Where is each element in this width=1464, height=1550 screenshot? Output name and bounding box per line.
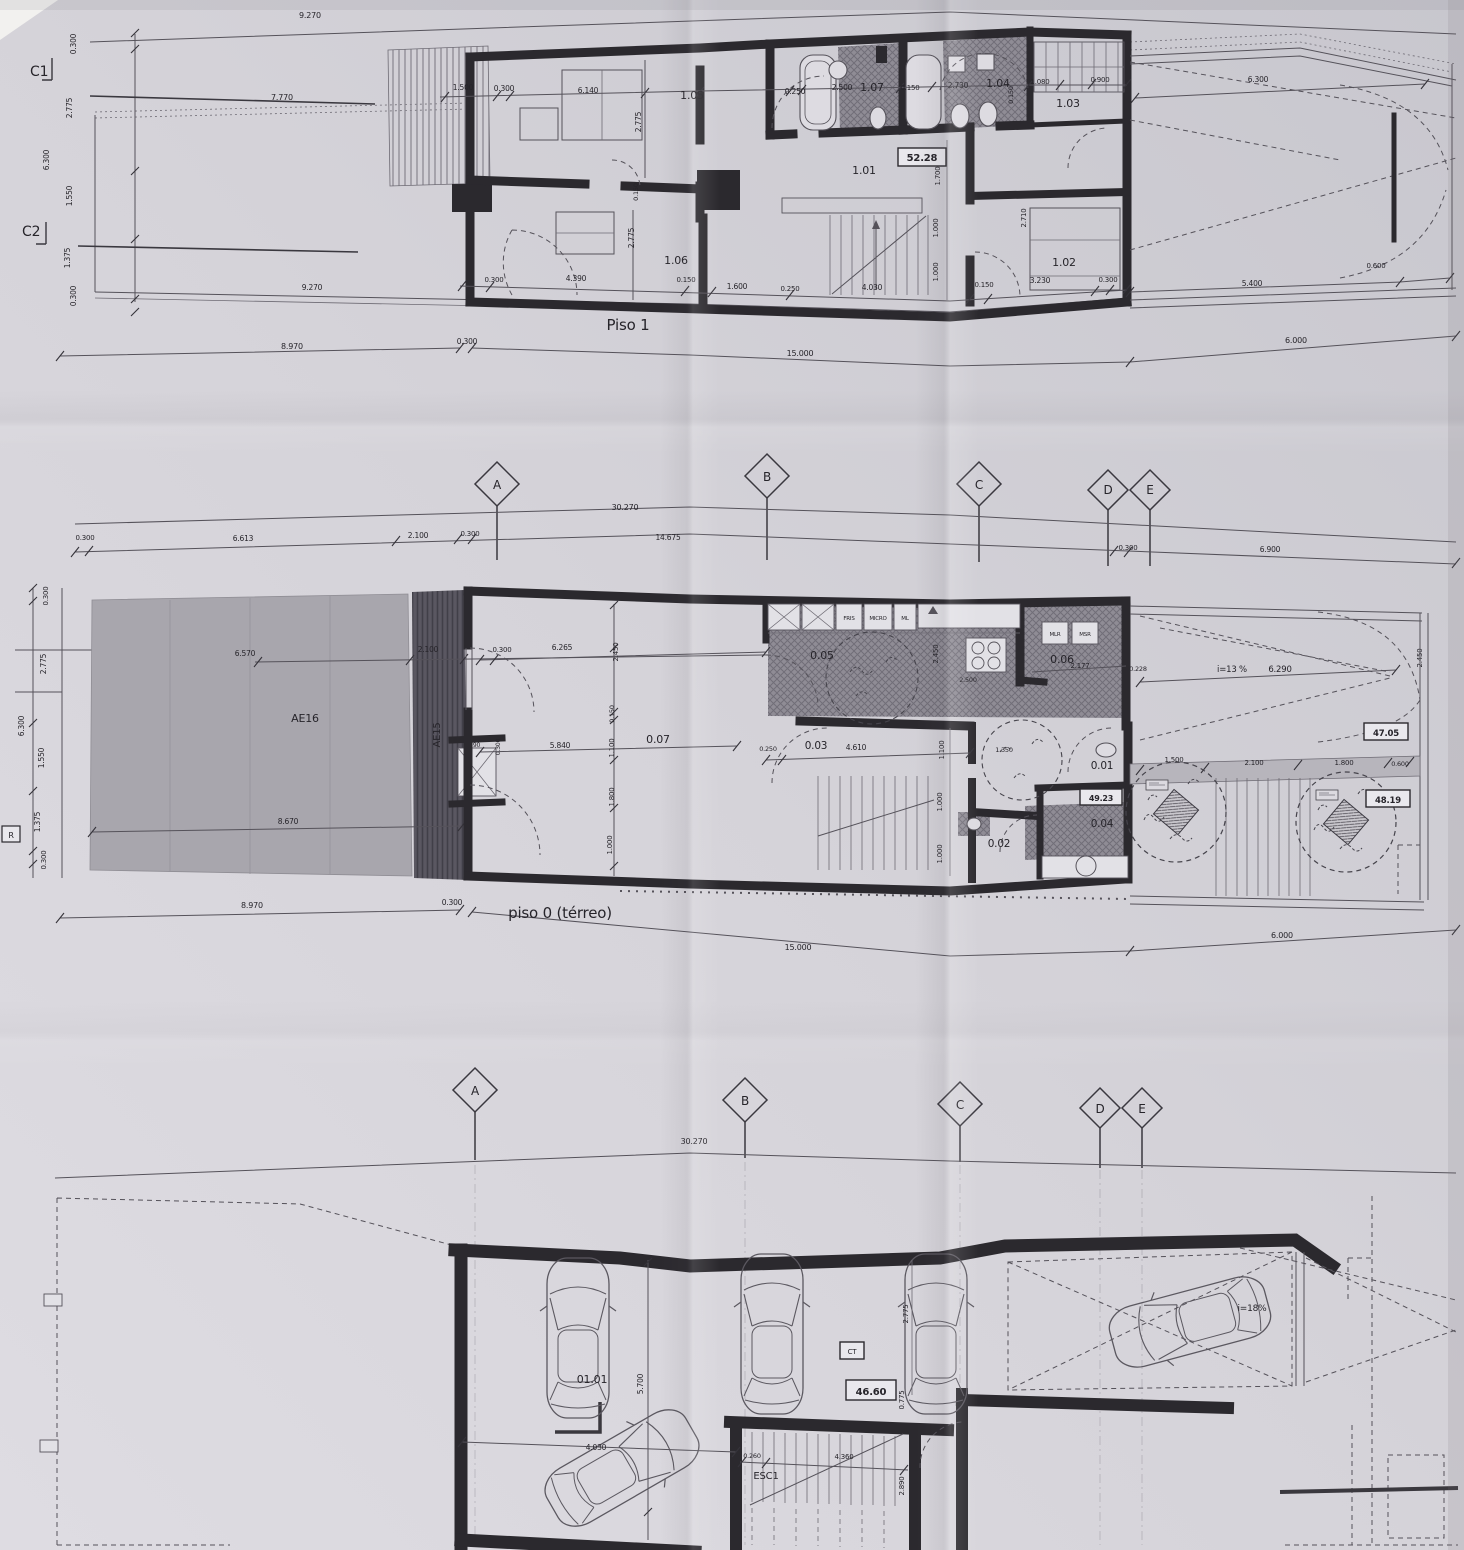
plan-title: piso 0 (térreo) xyxy=(508,904,612,922)
dim: 2.450 xyxy=(932,644,940,663)
dim: 0.228 xyxy=(1129,665,1147,673)
dim: 5.400 xyxy=(1242,279,1263,288)
dim: 8.670 xyxy=(278,817,299,826)
grid-letter: A xyxy=(493,478,502,492)
dim: 2.775 xyxy=(65,97,74,118)
room-label: 01.01 xyxy=(577,1373,608,1386)
toilet-icon xyxy=(951,104,969,128)
dim: 5.700 xyxy=(636,1373,645,1394)
dim: 0.300 xyxy=(69,285,78,306)
room-label: 1.05 xyxy=(680,89,704,102)
dim: 2.450 xyxy=(612,642,620,661)
dim: 1.350 xyxy=(995,746,1013,754)
dim: 0.150 xyxy=(632,183,640,201)
dim: 1.800 xyxy=(1334,759,1353,767)
dim: 6.570 xyxy=(235,649,256,658)
dim: 1.600 xyxy=(727,282,748,291)
dim: 0.300 xyxy=(495,739,502,756)
dim: 0.300 xyxy=(40,850,48,869)
room-label: 0.05 xyxy=(810,649,834,662)
dim: 1.800 xyxy=(608,787,616,806)
dim: 0.300 xyxy=(494,84,515,93)
dim: 0.150 xyxy=(608,705,616,723)
dim: 0.300 xyxy=(75,534,94,542)
area-value: 48.19 xyxy=(1375,796,1401,806)
blueprint-photo: { "colors":{"paper":"#d6d4da","ink":"#2b… xyxy=(0,0,1464,1550)
dim: 0.300 xyxy=(442,898,463,907)
plan-title: Piso 1 xyxy=(607,316,650,334)
dim: 0.150 xyxy=(974,281,993,289)
dim: 0.300 xyxy=(1118,544,1137,552)
grid-letter: A xyxy=(471,1084,480,1098)
dim: 1.375 xyxy=(33,811,42,832)
dim: 1.375 xyxy=(63,247,72,268)
dim: 2.100 xyxy=(418,645,439,654)
dim: 1.000 xyxy=(936,844,944,863)
r-marker: R xyxy=(8,831,14,840)
room-label: 1.06 xyxy=(664,254,688,267)
dim: 1.550 xyxy=(65,185,74,206)
dim: 0.250 xyxy=(785,87,806,96)
dim: 6.900 xyxy=(1260,545,1281,554)
dim: 0.600 xyxy=(1391,760,1409,768)
washbasin-icon xyxy=(977,54,994,70)
dim: 2.710 xyxy=(1020,208,1028,227)
area-value: 49.23 xyxy=(1089,794,1113,803)
toilet-icon xyxy=(967,818,981,830)
room-label: 1.01 xyxy=(852,164,876,177)
appliance-label: FRIS xyxy=(843,616,855,622)
dim: 4.360 xyxy=(834,1453,853,1461)
dim: 1.000 xyxy=(606,835,614,854)
dim: 1.100 xyxy=(608,738,616,757)
dim: 6.300 xyxy=(1248,75,1269,84)
dim: 2.730 xyxy=(948,81,969,90)
appliance-label: MSR xyxy=(1079,632,1091,638)
dim: 1.000 xyxy=(932,218,940,237)
dim: 0.150 xyxy=(900,84,919,92)
dim: 1.000 xyxy=(932,262,940,281)
deck-hatch xyxy=(388,46,490,186)
room-label: 0.01 xyxy=(1091,760,1114,772)
dim: 6.290 xyxy=(1268,665,1291,675)
ramp-slope: i=13 % xyxy=(1217,665,1247,675)
stair-label: ESC1 xyxy=(753,1471,778,1482)
dim: 0.300 xyxy=(460,530,479,538)
section-marker: C2 xyxy=(22,224,40,240)
section-marker: C1 xyxy=(30,64,48,80)
ct-label: CT xyxy=(848,1348,858,1356)
appliance-label: MICRO xyxy=(869,616,887,622)
dim: 2.500 xyxy=(832,83,853,92)
grid-letter: C xyxy=(975,478,983,492)
dim: 5.840 xyxy=(550,741,571,750)
dim: 6.000 xyxy=(1285,336,1307,345)
grid-letter: B xyxy=(741,1094,749,1108)
dim: 9.270 xyxy=(302,283,323,292)
dim: 2.775 xyxy=(902,1304,910,1323)
dim: 0.250 xyxy=(759,745,777,753)
zone-label: AE16 xyxy=(291,712,319,725)
washbasin-icon xyxy=(829,61,847,79)
area-value: 47.05 xyxy=(1373,729,1399,739)
room-label: 0.04 xyxy=(1091,818,1114,830)
dim: 0.900 xyxy=(1090,76,1109,84)
dim: 6.613 xyxy=(233,534,254,543)
dim: 15.000 xyxy=(787,349,814,358)
dim: 9.270 xyxy=(299,11,321,20)
zone-label: AE15 xyxy=(432,722,443,747)
grid-letter: C xyxy=(956,1098,964,1112)
washbasin-icon xyxy=(948,56,965,72)
dim: 6.300 xyxy=(42,149,51,170)
dim: 15.000 xyxy=(785,943,812,952)
room-label: 0.02 xyxy=(988,838,1011,850)
dim: 0.300 xyxy=(457,337,478,346)
dim: 14.675 xyxy=(655,533,680,542)
dim: 6.300 xyxy=(17,715,26,736)
dim: 4.610 xyxy=(846,743,867,752)
room-label: 1.02 xyxy=(1052,256,1076,269)
appliance-label: ML xyxy=(901,616,910,622)
appliance-label: MLR xyxy=(1049,632,1060,638)
dim: 7.770 xyxy=(271,93,293,102)
dim: 2.500 xyxy=(959,676,977,684)
dim: 2.100 xyxy=(408,531,429,540)
dim: 1.080 xyxy=(1030,78,1049,86)
grid-letter: D xyxy=(1103,483,1112,497)
area-value: 46.60 xyxy=(856,1387,887,1398)
room-label: 1.03 xyxy=(1056,97,1080,110)
dim: 1.700 xyxy=(934,166,942,185)
bathtub-icon xyxy=(906,55,941,129)
dim: 1.000 xyxy=(936,792,944,811)
room-label: 0.07 xyxy=(646,733,670,746)
dim: 0.300 xyxy=(69,33,78,54)
dim: 0.600 xyxy=(1366,262,1385,270)
dim: 2.890 xyxy=(898,1476,906,1495)
dim: 0.250 xyxy=(780,285,799,293)
dim: 2.100 xyxy=(1244,759,1263,767)
dim: 1.100 xyxy=(938,740,946,759)
dim: 0.150 xyxy=(676,276,695,284)
dim: 0.300 xyxy=(492,646,511,654)
dim: 4.390 xyxy=(566,274,587,283)
dim: 2.775 xyxy=(634,111,643,132)
ramp-slope: i=18% xyxy=(1237,1304,1267,1314)
dim: 6.140 xyxy=(578,86,599,95)
dim: 0.260 xyxy=(743,1452,761,1460)
toilet-icon xyxy=(1096,743,1116,757)
dim: 30.270 xyxy=(612,503,639,512)
dim: 2.177 xyxy=(1070,662,1089,670)
dim: 2.775 xyxy=(39,653,48,674)
dim: 8.970 xyxy=(241,901,263,910)
dim: 1.500 xyxy=(1164,756,1183,764)
dim: 1.550 xyxy=(37,747,46,768)
grid-letter: E xyxy=(1138,1102,1145,1116)
dim: 0.300 xyxy=(42,586,50,605)
dim: 2.775 xyxy=(627,227,636,248)
grid-letter: D xyxy=(1095,1102,1104,1116)
dim: 4.030 xyxy=(586,1443,607,1452)
scanned-floor-plans: 9.270 7.770 C1 C2 0.300 2.775 6.300 1.55… xyxy=(0,0,1464,1550)
dim: 3.230 xyxy=(1030,276,1051,285)
grid-letter: B xyxy=(763,470,771,484)
dim: 6.000 xyxy=(1271,931,1293,940)
dim: 30.270 xyxy=(681,1137,708,1146)
toilet-icon xyxy=(870,107,886,129)
dim: 6.265 xyxy=(552,643,573,652)
grid-letter: E xyxy=(1146,483,1153,497)
patio-ae16 xyxy=(90,594,412,876)
dim: 4.030 xyxy=(862,283,883,292)
room-label: 0.03 xyxy=(805,740,828,752)
area-value: 52.28 xyxy=(907,153,938,164)
dim: 0.775 xyxy=(898,1390,906,1409)
bidet-icon xyxy=(979,102,997,126)
dim: 0.150 xyxy=(1007,86,1015,104)
room-label: 1.07 xyxy=(860,81,884,94)
dim: 8.970 xyxy=(281,342,303,351)
dim: 1.500 xyxy=(453,83,474,92)
dim: 0.300 xyxy=(1098,276,1117,284)
dim: 0.300 xyxy=(484,276,503,284)
hob-icon xyxy=(966,638,1006,672)
